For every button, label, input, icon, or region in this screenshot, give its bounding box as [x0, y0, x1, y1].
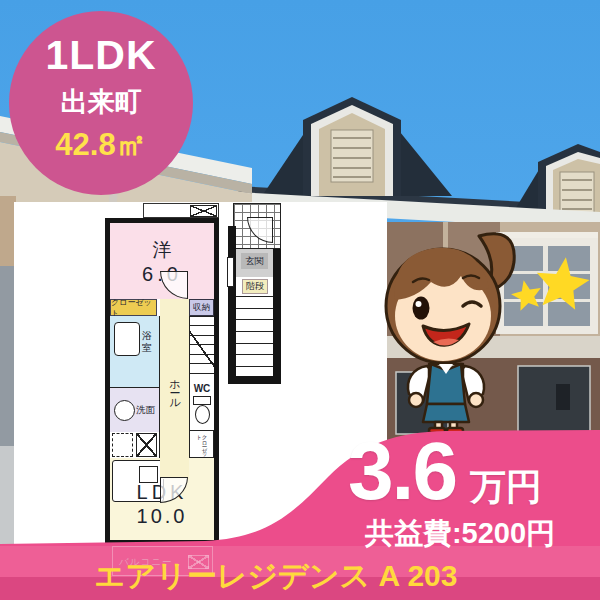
- badge-area: 42.8㎡: [55, 124, 146, 166]
- rent-price: 3.6 万円: [348, 430, 542, 512]
- badge-location: 出来町: [61, 84, 142, 120]
- badge-layout-type: 1LDK: [45, 32, 156, 79]
- listing-image: 洋 6.0 LDK 10.0 クローゼット 収納 浴室: [0, 0, 600, 600]
- listing-badge: 1LDK 出来町 42.8㎡: [9, 11, 193, 195]
- rent-amount: 3.6: [348, 430, 456, 512]
- property-name: エアリーレジデンス A 203: [6, 556, 546, 597]
- common-fee: 共益費:5200円: [352, 514, 568, 554]
- rent-unit: 万円: [470, 469, 542, 505]
